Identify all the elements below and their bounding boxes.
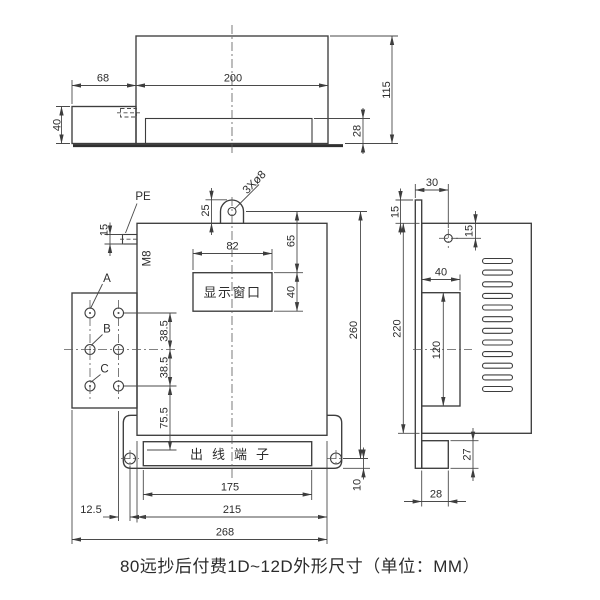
dim-hole-top: 15: [464, 225, 476, 237]
dim-window-top: 65: [286, 235, 298, 247]
dim-window-height: 40: [286, 286, 298, 298]
pe-leader: [126, 204, 138, 234]
side-mounting-plate: [415, 200, 421, 468]
dim-foot-width: 28: [430, 489, 442, 501]
dimension-drawing: 68 200 40 115 28 显示窗口: [0, 0, 600, 600]
dim-foot-height: 27: [462, 448, 474, 460]
dim-lug-height: 25: [200, 204, 212, 216]
display-window-label: 显示窗口: [203, 285, 261, 300]
dim-ext-height: 40: [52, 119, 64, 131]
dim-row-spacing-2: 38.5: [159, 357, 171, 378]
side-terminal-foot: [422, 441, 449, 469]
dim-front-body-width: 215: [223, 504, 241, 516]
dim-row-bottom: 75.5: [159, 407, 171, 428]
phase-a-label: A: [103, 273, 111, 285]
phase-c-label: C: [100, 364, 108, 376]
side-view: 30 15 15 40 120 220 27 28: [390, 177, 532, 507]
dim-front-total-height: 260: [348, 321, 360, 339]
dim-body-width: 200: [224, 73, 242, 85]
top-left-extension: [72, 107, 136, 144]
dim-row-spacing-1: 38.5: [159, 320, 171, 341]
top-inner-step: [146, 119, 313, 144]
dim-hole-offset: 10: [352, 479, 364, 491]
top-view: 68 200 40 115 28: [52, 25, 399, 154]
pe-label: PE: [135, 191, 151, 203]
dim-top-width: 30: [426, 177, 438, 189]
vent-slots: [483, 259, 513, 392]
holes-label: 3Xø8: [241, 169, 269, 197]
dim-ext-width: 68: [97, 73, 109, 85]
dim-pe-height: 15: [99, 224, 111, 236]
dim-inner-height: 28: [352, 125, 364, 137]
dim-recess-width: 40: [435, 267, 447, 279]
dim-total-height: 115: [381, 81, 393, 99]
hidden-bolt: [121, 109, 137, 118]
side-terminal-panel: [72, 293, 137, 408]
dim-recess-height: 120: [431, 341, 443, 359]
front-view: 显示窗口 出线端子 PE M8 3Xø8 A B C 25 15 82: [64, 169, 370, 544]
dim-terminal-width: 175: [221, 482, 239, 494]
m8-label: M8: [142, 251, 154, 267]
drawing-canvas: 68 200 40 115 28 显示窗口: [0, 0, 600, 600]
side-body-outline: [422, 223, 532, 433]
dim-hole-edge: 12.5: [80, 504, 101, 516]
drawing-caption: 80远抄后付费1D~12D外形尺寸（单位：MM）: [120, 557, 480, 576]
phase-b-label: B: [103, 324, 111, 336]
dim-side-body-height: 220: [392, 319, 404, 337]
dim-front-total-width: 268: [216, 527, 234, 539]
terminal-block-label: 出线端子: [190, 447, 278, 462]
dim-plate-top: 15: [390, 206, 402, 218]
dim-window-width: 82: [226, 241, 238, 253]
